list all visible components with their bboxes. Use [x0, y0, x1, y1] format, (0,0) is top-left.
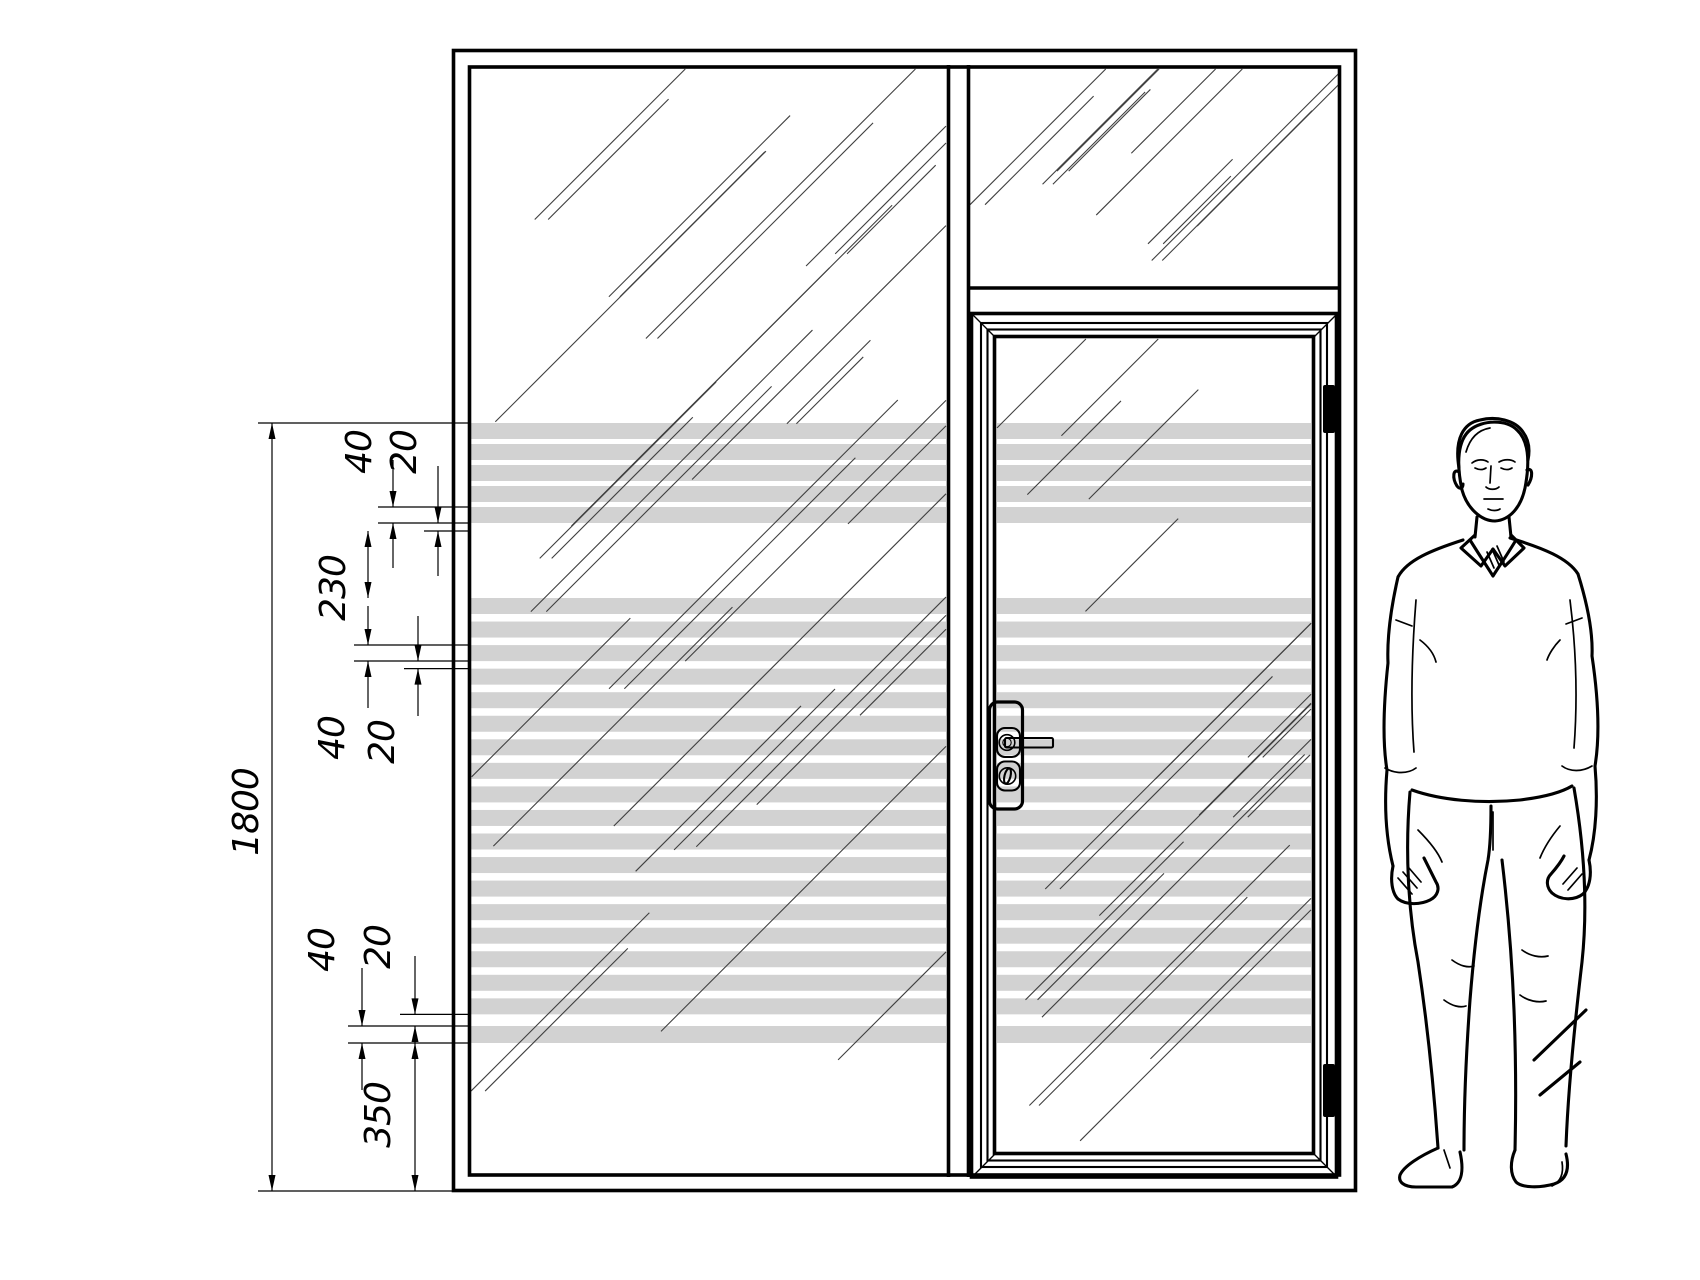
dimension-overall-1800: 1800	[226, 423, 276, 1191]
frosted-stripe	[997, 645, 1311, 661]
glass-reflection-line	[1197, 84, 1339, 226]
glass-reflection-lines-transom	[970, 69, 1339, 261]
frosted-stripe	[997, 622, 1311, 638]
frosted-stripe	[997, 465, 1311, 481]
glass-reflection-line	[485, 948, 628, 1091]
dimension-annotations: 1800 40 20 230	[226, 423, 470, 1191]
glass-reflection-line	[796, 357, 863, 424]
dim-label-1800: 1800	[226, 768, 267, 856]
dim-label-mid-20: 20	[362, 720, 403, 764]
frosted-stripe	[471, 645, 946, 661]
frosted-stripe	[471, 881, 946, 897]
figure-shoes	[1400, 1148, 1568, 1187]
glass-reflection-line	[1096, 69, 1242, 215]
figure-hands	[1392, 856, 1591, 904]
human-figure	[1384, 419, 1598, 1188]
frosted-stripe	[997, 716, 1311, 732]
glass-reflection-line	[535, 69, 686, 220]
glass-reflection-line	[1152, 73, 1339, 260]
dimension-mid-gap-20: 20	[362, 616, 422, 764]
glass-reflection-line	[806, 126, 946, 266]
glass-reflection-line	[970, 69, 1106, 205]
technical-drawing-canvas: 1800 40 20 230	[0, 0, 1700, 1280]
glass-reflection-line	[1085, 519, 1178, 612]
figure-head	[1454, 419, 1532, 522]
frosted-stripe	[997, 1026, 1311, 1043]
dim-label-230: 230	[313, 555, 354, 621]
frosted-stripe	[471, 465, 946, 481]
frosted-stripe	[471, 763, 946, 779]
glass-reflection-line	[1069, 89, 1151, 171]
dim-label-bottom-20: 20	[358, 925, 399, 969]
glass-reflection-line	[835, 143, 946, 254]
dimension-bottom-gap-20: 20	[358, 925, 419, 1043]
frosted-stripe	[997, 763, 1311, 779]
partition-frame	[454, 51, 1356, 1191]
frosted-stripe	[471, 669, 946, 685]
frosted-stripe	[471, 975, 946, 991]
frosted-stripe	[471, 786, 946, 802]
frosted-stripe	[471, 928, 946, 944]
glass-reflection-line	[692, 226, 946, 480]
dim-label-bottom-40: 40	[302, 928, 343, 972]
glass-reflection-line	[646, 69, 916, 339]
frosted-stripe	[997, 928, 1311, 944]
frosted-stripe	[471, 716, 946, 732]
frosted-stripe	[997, 692, 1311, 708]
frosted-stripe	[997, 507, 1311, 523]
frosted-stripes-left-pane	[471, 423, 946, 1043]
frosted-stripe	[471, 834, 946, 850]
glass-reflection-line	[1061, 339, 1158, 436]
glass-reflection-line	[1163, 176, 1231, 244]
frosted-stripe	[997, 486, 1311, 502]
glass-reflection-line	[609, 116, 790, 297]
frosted-stripe	[997, 951, 1311, 967]
glass-reflection-line	[548, 99, 668, 219]
frosted-stripe	[997, 423, 1311, 439]
frosted-stripe	[471, 622, 946, 638]
glass-reflection-line	[1043, 69, 1158, 184]
frosted-stripe	[471, 857, 946, 873]
glass-reflection-line	[1131, 69, 1215, 153]
dimension-bottom-offset-350: 350	[358, 1043, 419, 1191]
frosted-stripe	[997, 598, 1311, 614]
dimension-bottom-stripe-40: 40	[302, 928, 366, 1090]
frosted-stripe	[997, 998, 1311, 1014]
frosted-stripe	[997, 444, 1311, 460]
dim-label-mid-40: 40	[312, 716, 353, 760]
frosted-stripe	[997, 904, 1311, 920]
frosted-stripe	[997, 975, 1311, 991]
figure-legs	[1408, 788, 1586, 1150]
glass-reflection-line	[495, 151, 766, 422]
frosted-stripe	[471, 998, 946, 1014]
glass-reflection-line	[1053, 92, 1145, 184]
frosted-stripe	[471, 951, 946, 967]
dim-label-350: 350	[358, 1082, 399, 1148]
frosted-stripe	[471, 486, 946, 502]
outer-frame	[454, 51, 1356, 1191]
frosted-stripe	[997, 810, 1311, 826]
glass-reflection-line	[997, 339, 1086, 428]
frosted-stripe	[471, 904, 946, 920]
frosted-stripe	[471, 739, 946, 755]
glass-reflection-line	[1148, 159, 1233, 244]
frosted-stripe	[997, 834, 1311, 850]
frosted-stripe	[471, 423, 946, 439]
dim-label-top-20: 20	[384, 430, 425, 474]
dimension-clear-band-230: 230	[313, 531, 372, 621]
frosted-stripe	[471, 444, 946, 460]
dim-label-top-40: 40	[339, 430, 380, 474]
glass-reflection-line	[847, 165, 936, 254]
frosted-stripe	[471, 507, 946, 523]
glass-reflection-line	[787, 340, 871, 424]
frosted-stripes-door-glass	[997, 423, 1311, 1043]
glass-reflection-line	[1057, 69, 1159, 171]
